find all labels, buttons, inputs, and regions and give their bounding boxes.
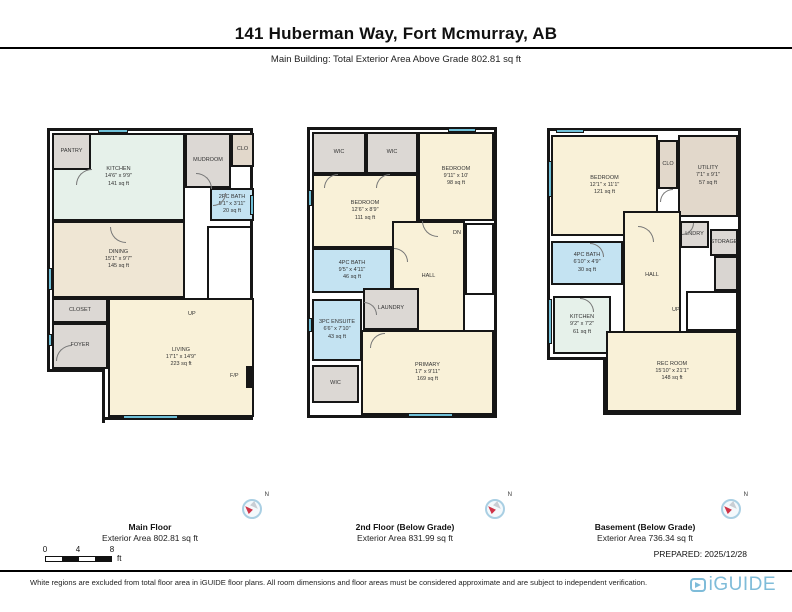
room-closet: CLOSET xyxy=(52,298,108,323)
iguide-logo-icon xyxy=(690,578,706,592)
footer-divider xyxy=(0,570,792,572)
stairs-up xyxy=(686,291,738,331)
door-arc xyxy=(660,189,673,202)
room-pantry: PANTRY xyxy=(52,133,91,170)
iguide-logo: iGUIDE xyxy=(690,574,776,596)
compass-icon: N xyxy=(721,499,741,519)
room-label: UTILITY7'1" x 9'1"57 sq ft xyxy=(696,165,720,186)
header-divider xyxy=(0,47,792,49)
prepared-date: PREPARED: 2025/12/28 xyxy=(654,549,747,559)
room-label: HALL xyxy=(422,273,436,280)
room-label: 3PC ENSUITE6'6" x 7'10"43 sq ft xyxy=(319,319,355,340)
window xyxy=(548,299,552,344)
caption-basement: Basement (Below Grade) Exterior Area 736… xyxy=(545,522,745,544)
room-4pc-bath: 4PC BATH9'5" x 4'11"46 sq ft xyxy=(312,248,392,293)
room-label: WIC xyxy=(330,380,341,387)
north-label: N xyxy=(744,492,748,498)
exterior-cutout xyxy=(547,357,606,415)
floor-area: Exterior Area 736.34 sq ft xyxy=(545,533,745,544)
north-label: N xyxy=(508,492,512,498)
scale-bar: 0 4 8 ft xyxy=(40,545,140,569)
room-label: BEDROOM12'1" x 11'1"121 sq ft xyxy=(590,175,620,196)
floor-name: Main Floor xyxy=(50,522,250,533)
room-utility: UTILITY7'1" x 9'1"57 sq ft xyxy=(678,135,738,217)
room-label: CLO xyxy=(237,146,248,153)
scale-tick: 4 xyxy=(76,545,80,554)
room-label: WIC xyxy=(334,149,345,156)
room-clo: CLO xyxy=(658,140,678,189)
room-wic: WIC xyxy=(366,132,418,174)
window xyxy=(408,413,453,417)
room-clo: CLO xyxy=(231,133,254,167)
window xyxy=(308,318,312,332)
floor-plan-second: WICWICBEDROOM9'11" x 10'98 sq ftBEDROOM1… xyxy=(307,127,497,418)
room-foyer: FOYER xyxy=(52,323,108,369)
room-label: REC ROOM15'10" x 21'1"148 sq ft xyxy=(655,361,688,382)
room-label: 4PC BATH9'5" x 4'11"46 sq ft xyxy=(339,260,366,281)
room-label: DINING15'1" x 9'7"145 sq ft xyxy=(105,249,132,270)
room-living: LIVING17'1" x 14'9"223 sq ft xyxy=(108,298,254,417)
exterior-cutout xyxy=(47,369,105,423)
room-label: KITCHEN9'2" x 7'2"61 sq ft xyxy=(570,314,594,335)
iguide-logo-text: iGUIDE xyxy=(709,574,776,596)
window xyxy=(98,129,128,133)
direction-label: UP xyxy=(188,311,196,317)
room-label: WIC xyxy=(387,149,398,156)
room-label: BEDROOM12'6" x 8'9"111 sq ft xyxy=(351,200,379,221)
floor-plan-main: KITCHEN14'6" x 9'9"141 sq ftPANTRYMUDROO… xyxy=(47,128,253,420)
compass-icon: N xyxy=(485,499,505,519)
direction-label: UP xyxy=(672,307,680,313)
room-label: BEDROOM9'11" x 10'98 sq ft xyxy=(442,166,470,187)
stairs-down xyxy=(465,223,494,295)
caption-second-floor: 2nd Floor (Below Grade) Exterior Area 83… xyxy=(305,522,505,544)
scale-unit: ft xyxy=(117,554,121,563)
page-title: 141 Huberman Way, Fort Mcmurray, AB xyxy=(0,24,792,44)
room-label: LIVING17'1" x 14'9"223 sq ft xyxy=(166,347,196,368)
floor-area: Exterior Area 802.81 sq ft xyxy=(50,533,250,544)
room-label: CLOSET xyxy=(69,307,91,314)
direction-label: DN xyxy=(453,230,461,236)
room-label: MUDROOM xyxy=(193,157,223,164)
room-3pc-ensuite: 3PC ENSUITE6'6" x 7'10"43 sq ft xyxy=(312,299,362,361)
window xyxy=(548,161,552,197)
room-rec-room: REC ROOM15'10" x 21'1"148 sq ft xyxy=(606,331,738,412)
floor-area: Exterior Area 831.99 sq ft xyxy=(305,533,505,544)
room-label: KITCHEN14'6" x 9'9"141 sq ft xyxy=(105,166,132,187)
window xyxy=(250,195,254,215)
room-hall: HALL xyxy=(623,211,681,341)
window xyxy=(308,190,312,206)
room-label: CLO xyxy=(662,161,673,168)
window xyxy=(48,268,52,290)
window xyxy=(123,415,178,419)
room-storage: STORAGE xyxy=(710,229,738,256)
compass-icon: N xyxy=(242,499,262,519)
footer-disclaimer: White regions are excluded from total fl… xyxy=(30,578,647,587)
room-label: PRIMARY17' x 9'11"169 sq ft xyxy=(415,362,440,383)
window xyxy=(556,129,584,133)
caption-main-floor: Main Floor Exterior Area 802.81 sq ft xyxy=(50,522,250,544)
scale-tick: 0 xyxy=(43,545,47,554)
window xyxy=(48,334,52,346)
scale-tick: 8 xyxy=(110,545,114,554)
scale-bar-segments xyxy=(45,556,112,562)
room-wic: WIC xyxy=(312,132,366,174)
floor-name: 2nd Floor (Below Grade) xyxy=(305,522,505,533)
north-label: N xyxy=(265,492,269,498)
room-label: FOYER xyxy=(71,342,90,349)
direction-label: F/P xyxy=(230,373,239,379)
window xyxy=(448,128,476,132)
room-bedroom: BEDROOM9'11" x 10'98 sq ft xyxy=(418,132,494,221)
fireplace xyxy=(246,366,254,388)
floor-name: Basement (Below Grade) xyxy=(545,522,745,533)
room-label: HALL xyxy=(645,272,659,279)
room-wic: WIC xyxy=(312,365,359,403)
stair-landing xyxy=(714,256,738,291)
floor-plan-basement: BEDROOM12'1" x 11'1"121 sq ftCLOUTILITY7… xyxy=(547,128,741,415)
floor-plan-page: 141 Huberman Way, Fort Mcmurray, AB Main… xyxy=(0,0,792,612)
room-4pc-bath: 4PC BATH6'10" x 4'9"30 sq ft xyxy=(551,241,623,285)
room-label: LAUNDRY xyxy=(378,305,404,312)
room-label: PANTRY xyxy=(61,148,83,155)
page-subtitle: Main Building: Total Exterior Area Above… xyxy=(0,54,792,65)
room-label: STORAGE xyxy=(711,239,738,246)
